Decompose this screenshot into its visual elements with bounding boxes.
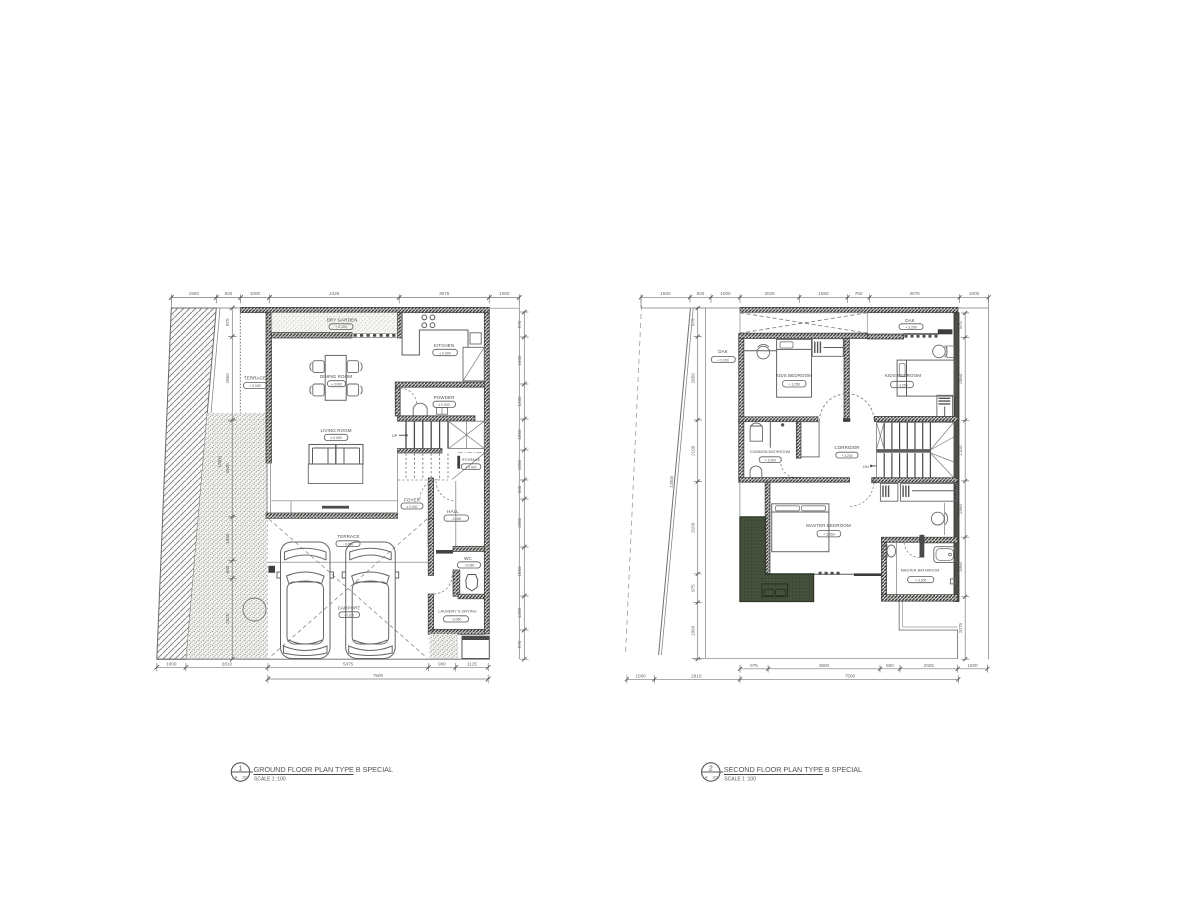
svg-text:600: 600	[517, 485, 522, 493]
svg-text:2810: 2810	[691, 673, 702, 678]
svg-text:975: 975	[958, 321, 963, 329]
svg-text:TERRACE: TERRACE	[337, 534, 359, 539]
svg-text:2100: 2100	[958, 445, 963, 456]
svg-text:KIDS BEDROOM: KIDS BEDROOM	[776, 373, 812, 378]
svg-text:+ 3.200: + 3.200	[841, 454, 852, 458]
svg-text:1000: 1000	[166, 661, 177, 666]
svg-text:975: 975	[690, 318, 695, 326]
svg-text:820: 820	[697, 291, 705, 296]
svg-text:101: 101	[712, 776, 718, 780]
svg-text:975: 975	[517, 320, 522, 328]
svg-text:± 0.000: ± 0.000	[439, 351, 450, 355]
svg-text:+ 3.200: + 3.200	[905, 325, 917, 329]
svg-text:SECOND FLOOR PLAN TYPE B SPECI: SECOND FLOOR PLAN TYPE B SPECIAL	[724, 765, 862, 774]
svg-text:MASTER BEDROOM: MASTER BEDROOM	[806, 523, 851, 528]
svg-text:600: 600	[225, 565, 230, 573]
svg-text:1: 1	[239, 766, 243, 773]
svg-text:750: 750	[855, 291, 863, 296]
svg-text:MASTER BATHROOM: MASTER BATHROOM	[901, 569, 940, 573]
svg-text:LAUNDRY & DRYING: LAUNDRY & DRYING	[438, 609, 476, 614]
svg-text:975: 975	[225, 318, 230, 326]
svg-text:CORRIDOR: CORRIDOR	[834, 445, 860, 450]
svg-text:SCALE 1 :100: SCALE 1 :100	[724, 777, 756, 783]
svg-text:1000: 1000	[635, 673, 646, 678]
svg-text:+ 3.200: + 3.200	[717, 358, 729, 362]
svg-text:1200: 1200	[517, 396, 522, 407]
svg-text:2025: 2025	[924, 663, 935, 668]
svg-text:2100: 2100	[690, 445, 695, 456]
svg-text:3075: 3075	[439, 291, 450, 296]
svg-text:1500: 1500	[225, 533, 230, 544]
svg-text:7500: 7500	[373, 673, 384, 678]
svg-text:1050: 1050	[517, 429, 522, 440]
svg-text:- 0.050: - 0.050	[464, 564, 475, 568]
svg-text:± 0.000: ± 0.000	[407, 505, 418, 509]
svg-text:+ 3.200: + 3.200	[765, 458, 776, 462]
svg-text:1200: 1200	[517, 607, 522, 618]
svg-text:± 0.000: ± 0.000	[466, 465, 477, 469]
svg-text:12000: 12000	[669, 475, 675, 488]
svg-text:1000: 1000	[720, 291, 731, 296]
svg-text:DN: DN	[863, 464, 869, 469]
svg-text:2850: 2850	[958, 373, 963, 384]
svg-text:± 0.000: ± 0.000	[331, 382, 342, 386]
svg-text:2025: 2025	[764, 291, 775, 296]
svg-text:HALL: HALL	[447, 509, 459, 514]
svg-text:KITCHEN: KITCHEN	[434, 343, 454, 348]
svg-text:+ 3.250: + 3.250	[789, 383, 801, 387]
svg-text:975: 975	[750, 663, 758, 668]
svg-text:LIVING ROOM: LIVING ROOM	[320, 428, 351, 433]
svg-text:4425: 4425	[329, 291, 340, 296]
svg-text:+ 3.250: + 3.250	[823, 533, 835, 537]
svg-text:+ 0.100: + 0.100	[335, 325, 347, 329]
svg-text:1500: 1500	[189, 291, 200, 296]
svg-text:975: 975	[690, 584, 695, 592]
svg-text:600: 600	[886, 663, 894, 668]
svg-text:1950: 1950	[958, 504, 963, 515]
svg-text:+ 3.200: + 3.200	[915, 578, 927, 582]
svg-text:1650: 1650	[517, 566, 522, 577]
svg-text:1650: 1650	[517, 355, 522, 366]
svg-text:BALCONY: BALCONY	[767, 579, 784, 583]
svg-text:3800: 3800	[819, 663, 830, 668]
svg-text:2850: 2850	[225, 373, 230, 384]
svg-text:- 0.050: - 0.050	[451, 517, 462, 521]
svg-text:POWDER: POWDER	[434, 395, 456, 400]
svg-text:1650: 1650	[818, 291, 829, 296]
svg-text:UP: UP	[392, 433, 398, 438]
svg-text:2075: 2075	[958, 622, 963, 633]
svg-text:STORAGE: STORAGE	[462, 458, 481, 462]
svg-text:3150: 3150	[690, 522, 695, 533]
svg-text:1950: 1950	[958, 561, 963, 572]
svg-text:± 0.000: ± 0.000	[438, 403, 449, 407]
svg-text:1000: 1000	[967, 663, 978, 668]
svg-text:2850: 2850	[690, 373, 695, 384]
svg-text:2810: 2810	[222, 661, 233, 666]
svg-text:DRY GARDEN: DRY GARDEN	[327, 318, 358, 323]
svg-text:WC: WC	[464, 556, 472, 561]
svg-text:975: 975	[517, 640, 522, 648]
svg-text:5475: 5475	[343, 661, 354, 666]
svg-text:DAK: DAK	[718, 349, 728, 354]
svg-text:- 0.050: - 0.050	[451, 618, 462, 622]
svg-text:12000: 12000	[217, 455, 223, 468]
svg-text:820: 820	[225, 291, 233, 296]
svg-text:3075: 3075	[909, 291, 920, 296]
svg-text:CARPORT: CARPORT	[338, 606, 361, 611]
svg-text:1000: 1000	[969, 291, 980, 296]
svg-text:1000: 1000	[250, 291, 261, 296]
svg-text:1500: 1500	[660, 291, 671, 296]
svg-text:+ 0.150: + 0.150	[249, 384, 261, 388]
svg-text:1000: 1000	[499, 291, 510, 296]
svg-text:FOYER: FOYER	[404, 498, 421, 503]
svg-text:2: 2	[709, 766, 713, 773]
svg-text:3300: 3300	[225, 463, 230, 474]
svg-text:1050: 1050	[517, 459, 522, 470]
svg-text:1950: 1950	[690, 625, 695, 636]
svg-text:+ 3.250: + 3.250	[896, 383, 908, 387]
svg-text:KIDS BEDROOM: KIDS BEDROOM	[885, 373, 921, 378]
svg-text:DAK: DAK	[905, 318, 915, 323]
svg-text:TERRACE: TERRACE	[244, 376, 266, 381]
svg-text:1125: 1125	[467, 661, 477, 666]
svg-text:1650: 1650	[517, 517, 522, 528]
svg-text:DINING ROOM: DINING ROOM	[320, 374, 352, 379]
svg-text:COMMON BATHROOM: COMMON BATHROOM	[750, 450, 790, 454]
svg-text:101: 101	[242, 776, 248, 780]
svg-text:2825: 2825	[225, 613, 230, 624]
svg-text:900: 900	[438, 661, 446, 666]
svg-text:GROUND FLOOR PLAN TYPE B SPECI: GROUND FLOOR PLAN TYPE B SPECIAL	[254, 765, 393, 774]
svg-text:7500: 7500	[845, 673, 856, 678]
svg-text:± 0.000: ± 0.000	[330, 436, 341, 440]
svg-text:SCALE 1 :100: SCALE 1 :100	[254, 777, 286, 783]
